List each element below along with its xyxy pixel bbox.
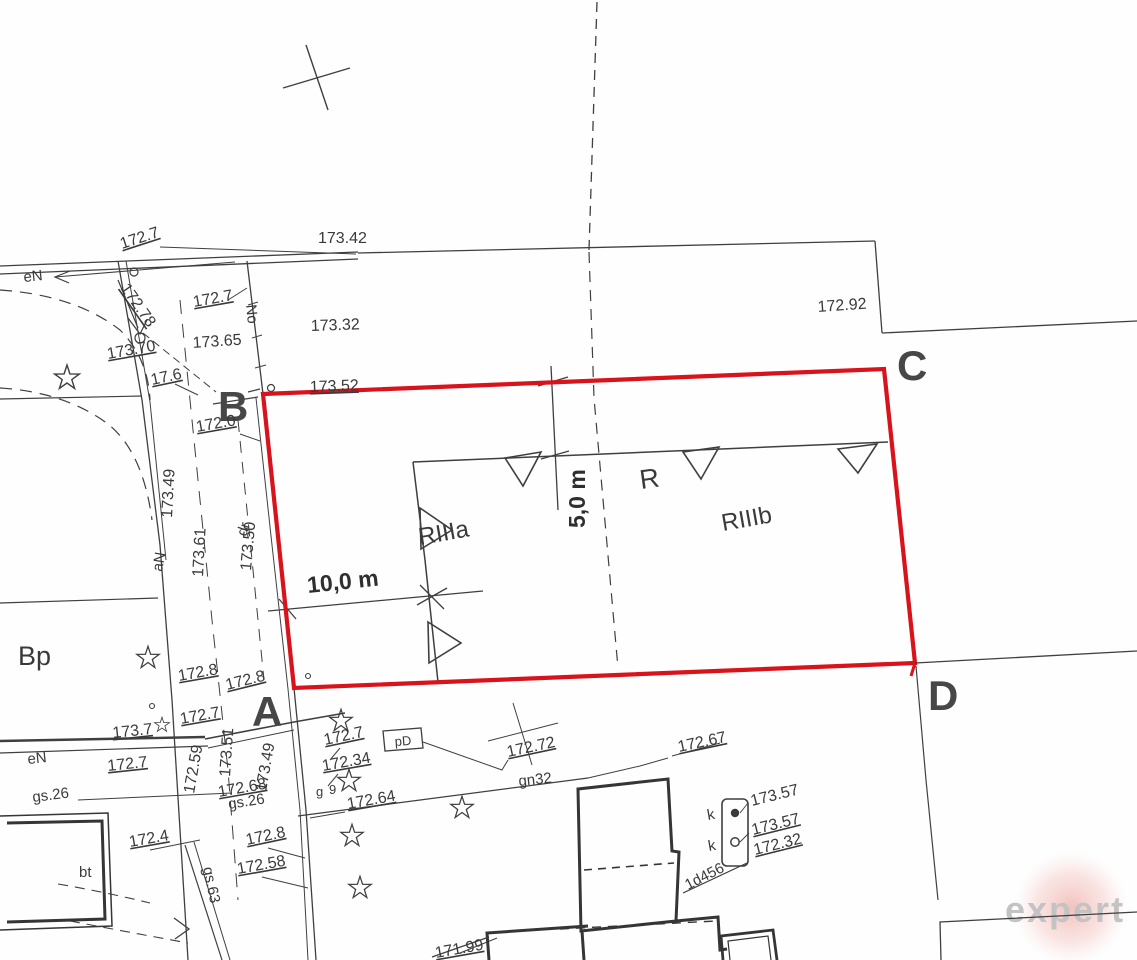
boundary-point-marker xyxy=(150,704,155,709)
buildings xyxy=(0,779,777,960)
boundary-point-marker xyxy=(306,674,311,679)
spot-height: 172.67 xyxy=(676,729,728,756)
spot-height: 172.8 xyxy=(177,661,219,685)
point-tick xyxy=(248,389,260,392)
parcel-boundary-east xyxy=(882,321,1137,333)
watermark: expert xyxy=(1005,850,1129,960)
building-outline xyxy=(578,779,679,931)
watermark-text: expert xyxy=(1005,889,1125,930)
star-icon xyxy=(338,769,360,790)
star-symbols xyxy=(55,365,474,897)
dimension-line-vertical xyxy=(551,366,558,510)
spot-height: 172.59 xyxy=(181,743,206,794)
cable-line xyxy=(55,262,235,277)
spot-height: 172.34 xyxy=(321,750,372,775)
parcel-boundary-north xyxy=(358,241,875,253)
utility-label-pd: pD xyxy=(394,733,412,749)
parcel-line-west2 xyxy=(0,598,158,603)
dashed-curve xyxy=(70,921,188,943)
building-outline xyxy=(0,813,112,930)
star-icon xyxy=(155,717,170,731)
parcel-line-from-d xyxy=(915,651,1137,663)
spot-height: 173.57 xyxy=(749,782,801,810)
utility-label-g: g xyxy=(316,784,323,799)
star-icon xyxy=(451,796,473,817)
dashed-curve xyxy=(0,388,152,520)
landuse-label-r: R xyxy=(638,463,661,495)
landuse-label-riiib: RIIIb xyxy=(719,502,774,537)
leader-line xyxy=(240,434,260,441)
landuse-label-bt: bt xyxy=(79,864,92,881)
leader-line xyxy=(175,384,198,395)
spot-height: 172.7 xyxy=(179,704,221,728)
building-inner-wall xyxy=(728,936,771,960)
spot-height: 173.51 xyxy=(217,727,237,777)
utility-label-en-bottom: eN xyxy=(27,749,48,768)
spot-height: 173.70 xyxy=(106,338,157,363)
utility-label-no: No xyxy=(242,304,261,325)
landuse-label-riiia: RIIIa xyxy=(416,515,471,551)
spot-height: 173.65 xyxy=(192,332,242,352)
point-label-c: C xyxy=(897,342,927,389)
spot-height: 172.78 xyxy=(117,281,159,331)
grid-cross xyxy=(283,45,350,110)
grid-cross-line xyxy=(306,45,328,110)
boundary-point-marker xyxy=(268,385,275,392)
spot-height: 173.49 xyxy=(159,468,179,518)
leader-line xyxy=(160,247,356,254)
spot-height: 173.42 xyxy=(318,230,367,247)
spot-height: 172.92 xyxy=(817,296,867,316)
leader-line xyxy=(423,742,508,770)
marker-label-k-top: k xyxy=(706,806,717,824)
spot-height: 172.72 xyxy=(505,734,557,761)
building-dashed-wall xyxy=(584,863,674,870)
spot-height: 172.7 xyxy=(118,224,161,253)
spot-height: 173.32 xyxy=(311,316,361,335)
road-edge-top xyxy=(0,252,358,266)
cadastral-map-scan: expert xyxy=(0,0,1137,960)
dimension-line-horizontal xyxy=(268,591,483,611)
utility-label-en-top: eN xyxy=(23,267,44,286)
parcel-line-west1 xyxy=(0,396,142,399)
building-outline xyxy=(487,926,588,960)
parcel-boundary-jog xyxy=(875,241,882,333)
landuse-triangle-icon xyxy=(838,444,877,473)
interior-line-vertical xyxy=(413,462,438,682)
leader-line xyxy=(78,793,232,800)
landuse-triangle-icon xyxy=(683,447,719,479)
building-outline xyxy=(582,931,584,960)
point-label-d: D xyxy=(928,672,958,719)
spot-height: 172.7 xyxy=(192,287,234,311)
star-icon xyxy=(349,876,371,897)
spot-height: 173.50 xyxy=(238,521,259,571)
point-label-a: A xyxy=(252,688,282,735)
labels: B C D A 10,0 m 5,0 m Bp RIIIa RIIIb R bt… xyxy=(18,224,958,960)
spot-height: 172.0 xyxy=(195,412,237,436)
star-icon xyxy=(137,646,159,667)
leader-line xyxy=(310,812,345,818)
star-icon xyxy=(341,824,363,845)
utility-label-9: 9 xyxy=(329,782,336,797)
spot-height: 172.8 xyxy=(244,824,287,849)
pole-symbol xyxy=(130,268,138,276)
spot-height: 173.52 xyxy=(310,377,360,396)
marker-dot-open xyxy=(731,838,739,846)
fence-line xyxy=(588,758,668,778)
spot-height: 171.99 xyxy=(434,937,485,960)
marker-label-k-bottom: k xyxy=(707,837,718,855)
parcel-interior xyxy=(268,252,888,682)
spot-height: 172.7 xyxy=(107,754,149,775)
dimension-label-horizontal: 10,0 m xyxy=(306,565,380,598)
utility-label-an: aN xyxy=(149,551,169,573)
dashed-boundary-top xyxy=(589,2,597,250)
parcel-id-label: 1d456 xyxy=(682,859,727,893)
spot-height: 173.61 xyxy=(190,527,210,577)
landuse-label-bp: Bp xyxy=(18,641,51,671)
leader-line xyxy=(262,877,308,888)
utility-label-gn32: gn32 xyxy=(518,770,553,790)
spot-height: 172.7 xyxy=(322,724,365,749)
building-outline xyxy=(676,917,727,950)
spot-height: 172.64 xyxy=(346,788,397,813)
spot-height: 172.58 xyxy=(236,853,287,878)
interior-line-horizontal xyxy=(413,442,888,462)
dimension-label-vertical: 5,0 m xyxy=(564,469,590,528)
marker-dot-filled xyxy=(731,809,739,817)
dashed-division-line xyxy=(589,252,618,668)
star-icon xyxy=(55,365,80,389)
utility-label-gs26-left: gs.26 xyxy=(31,785,70,806)
